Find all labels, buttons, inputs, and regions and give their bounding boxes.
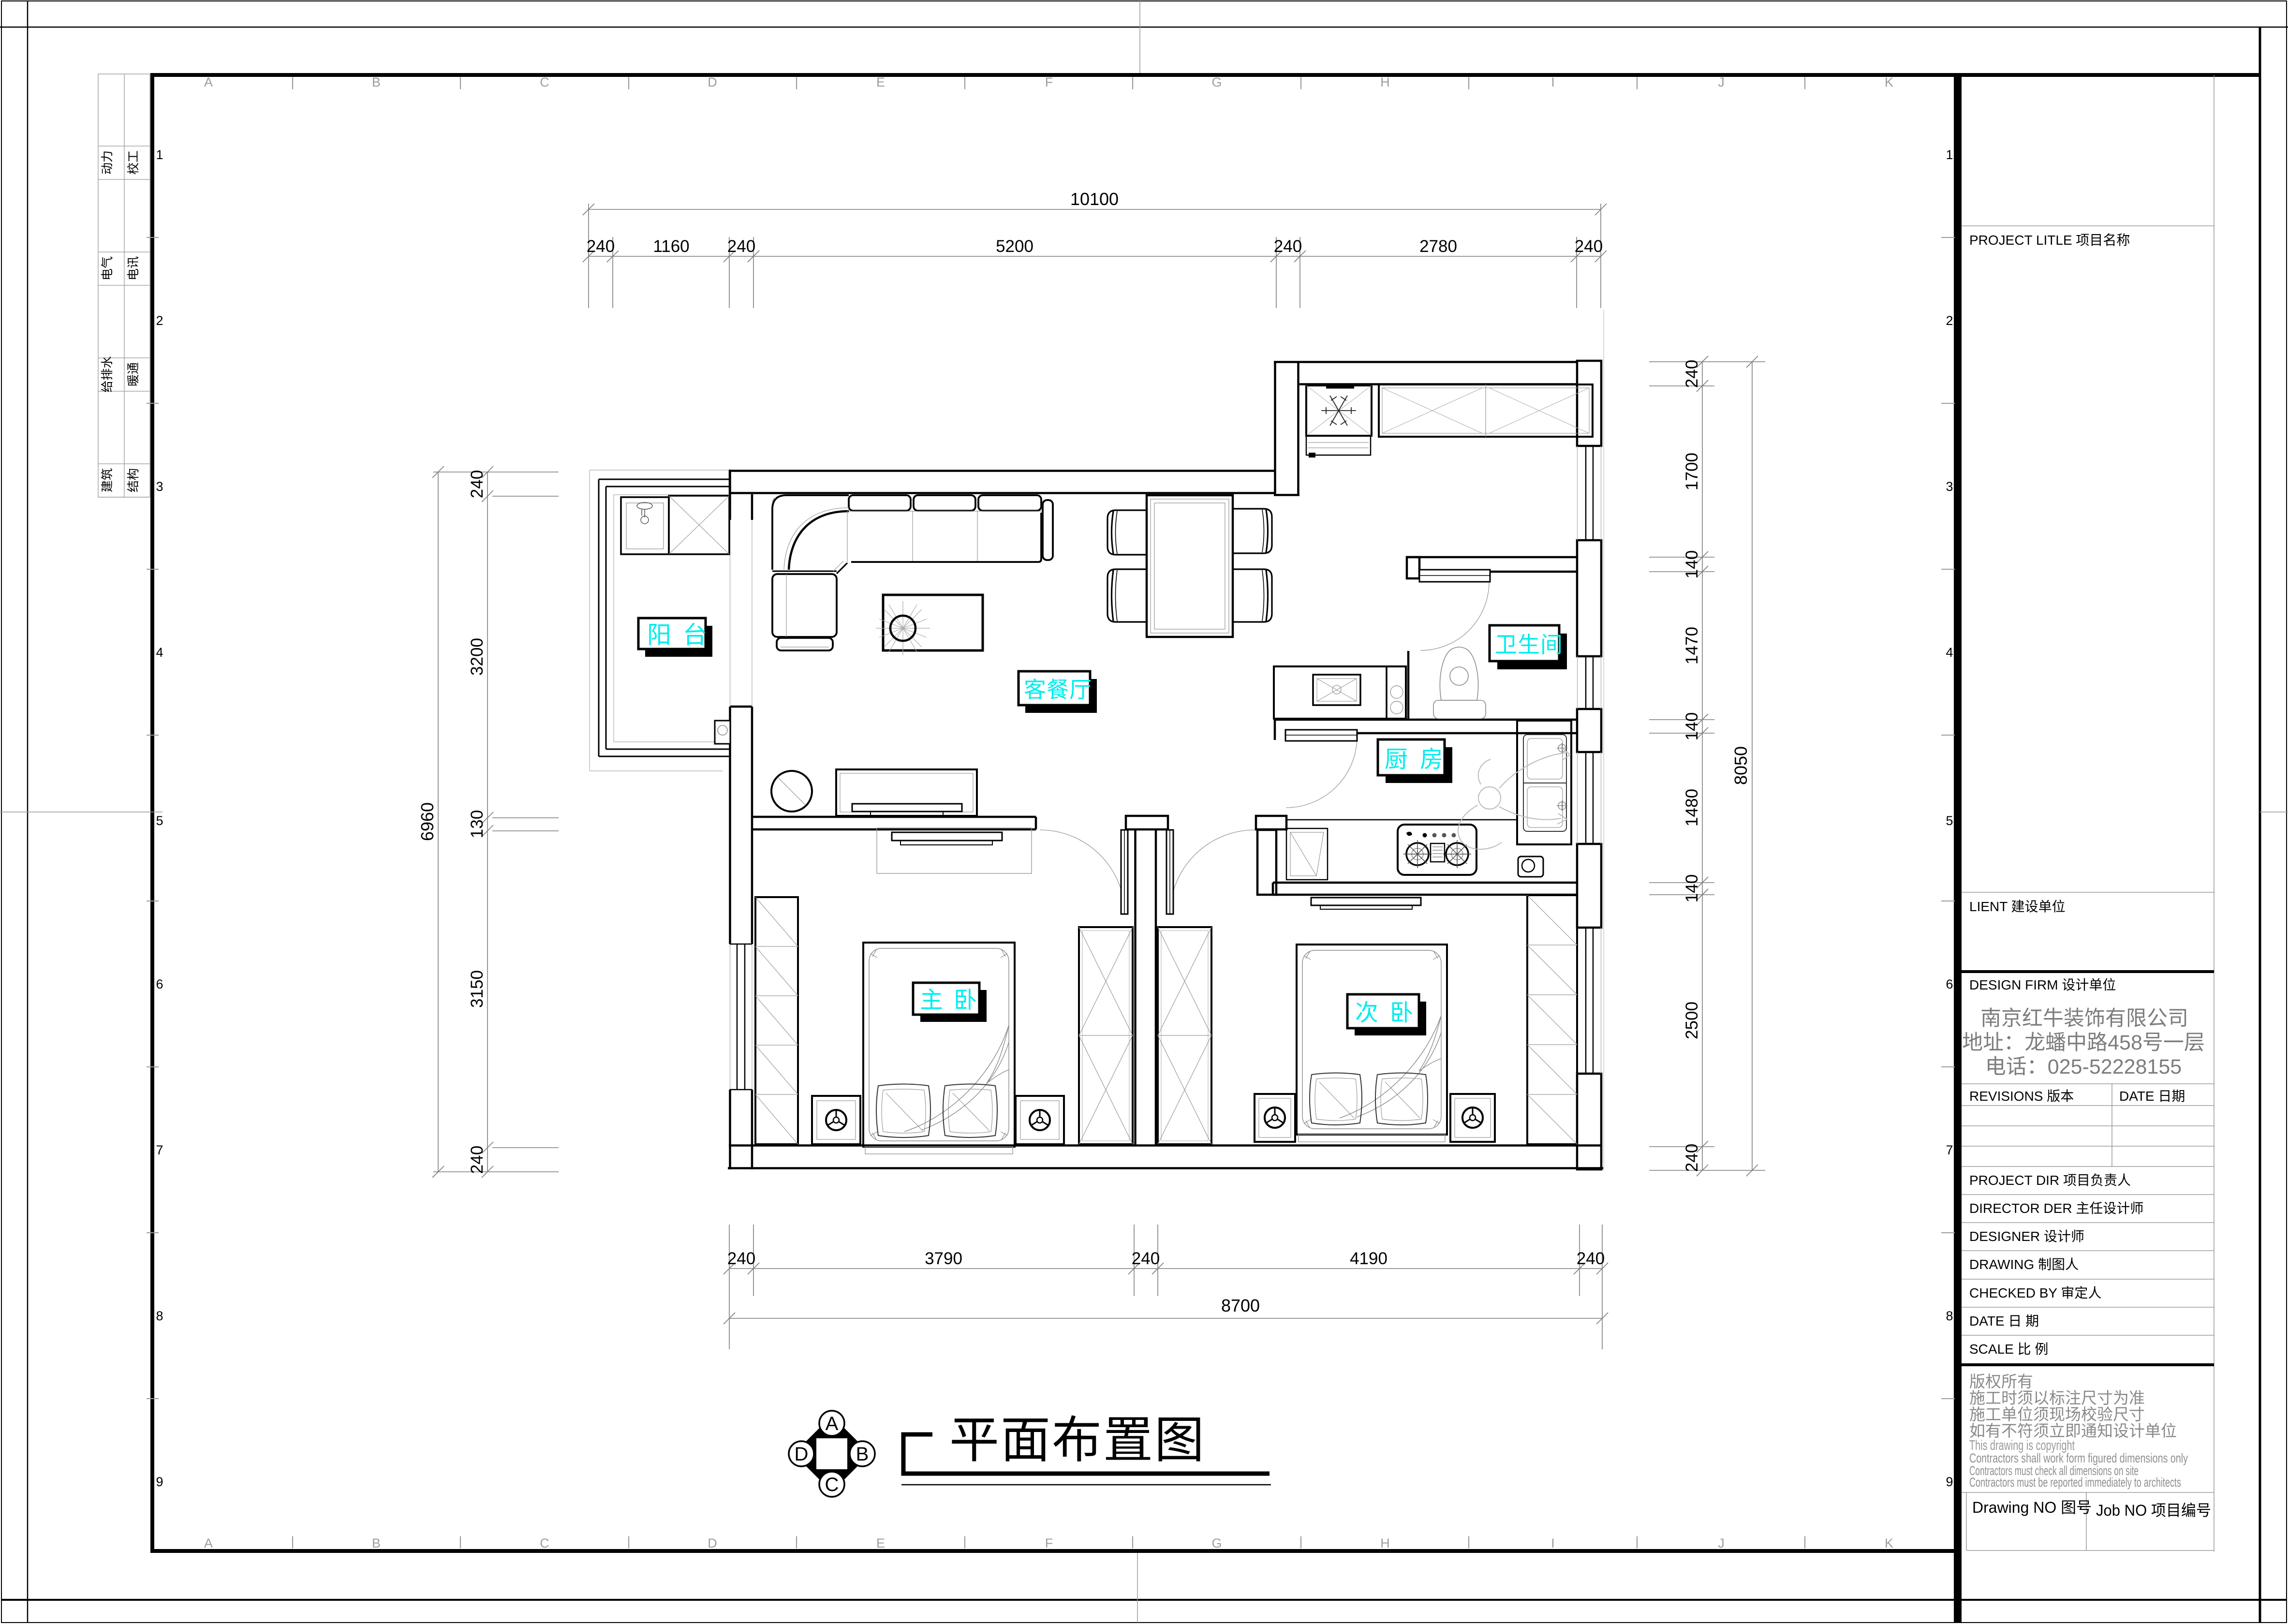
- svg-text:240: 240: [1132, 1249, 1160, 1268]
- svg-text:A: A: [826, 1413, 839, 1434]
- svg-text:2500: 2500: [1683, 1002, 1701, 1039]
- svg-text:8: 8: [156, 1309, 163, 1323]
- svg-text:电气: 电气: [101, 256, 114, 281]
- svg-text:建筑: 建筑: [101, 468, 114, 492]
- svg-text:|: |: [1635, 1534, 1639, 1549]
- svg-text:餐: 餐: [1047, 677, 1069, 702]
- svg-text:10100: 10100: [1070, 189, 1119, 209]
- svg-text:Contractors must be reported i: Contractors must be reported immediately…: [1969, 1475, 2181, 1490]
- svg-text:电话：025-52228155: 电话：025-52228155: [1985, 1055, 2182, 1078]
- svg-text:H: H: [1380, 75, 1390, 89]
- svg-text:|: |: [795, 1534, 798, 1549]
- svg-text:140: 140: [1683, 712, 1701, 740]
- svg-text:施工单位须现场校验尺寸: 施工单位须现场校验尺寸: [1969, 1405, 2145, 1423]
- svg-text:B: B: [856, 1444, 869, 1465]
- svg-text:9: 9: [156, 1475, 163, 1489]
- svg-text:电讯: 电讯: [127, 256, 140, 281]
- svg-text:E: E: [876, 75, 885, 89]
- svg-text:D: D: [708, 1536, 717, 1550]
- svg-text:1160: 1160: [653, 237, 689, 256]
- svg-text:F: F: [1045, 75, 1053, 89]
- svg-text:施工时须以标注尺寸为准: 施工时须以标注尺寸为准: [1969, 1389, 2145, 1407]
- svg-text:J: J: [1718, 1536, 1725, 1550]
- svg-text:客: 客: [1024, 677, 1046, 702]
- svg-text:厅: 厅: [1069, 677, 1092, 702]
- svg-text:Job NO 项目编号: Job NO 项目编号: [2096, 1502, 2211, 1519]
- svg-text:Drawing NO 图号: Drawing NO 图号: [1972, 1499, 2092, 1516]
- svg-text:D: D: [708, 75, 717, 89]
- svg-text:K: K: [1885, 75, 1893, 89]
- svg-text:240: 240: [1683, 360, 1701, 388]
- svg-text:|: |: [1467, 75, 1470, 89]
- svg-text:A: A: [204, 1536, 213, 1550]
- svg-text:3: 3: [1946, 479, 1953, 494]
- svg-text:|: |: [291, 75, 294, 89]
- svg-text:D: D: [795, 1444, 809, 1465]
- svg-text:|: |: [291, 1534, 294, 1549]
- svg-text:8: 8: [1946, 1309, 1953, 1323]
- svg-text:3200: 3200: [468, 638, 487, 676]
- svg-text:C: C: [540, 1536, 549, 1550]
- svg-text:A: A: [204, 75, 213, 89]
- svg-text:结构: 结构: [127, 468, 140, 492]
- svg-text:2: 2: [1946, 313, 1953, 328]
- svg-text:K: K: [1885, 1536, 1893, 1550]
- svg-text:140: 140: [1683, 550, 1701, 578]
- svg-text:动力: 动力: [101, 150, 114, 175]
- svg-text:DATE 日 期: DATE 日 期: [1969, 1314, 2039, 1329]
- svg-text:C: C: [825, 1474, 839, 1495]
- svg-text:次: 次: [1355, 1000, 1378, 1026]
- svg-text:240: 240: [1575, 237, 1603, 256]
- svg-text:J: J: [1718, 75, 1725, 89]
- svg-text:I: I: [1551, 1536, 1555, 1550]
- svg-text:|: |: [627, 1534, 630, 1549]
- svg-text:5: 5: [156, 813, 163, 828]
- svg-text:版权所有: 版权所有: [1969, 1373, 2033, 1390]
- svg-text:|: |: [963, 1534, 966, 1549]
- svg-text:阳: 阳: [647, 621, 671, 649]
- svg-text:DIRECTOR DER 主任设计师: DIRECTOR DER 主任设计师: [1969, 1201, 2143, 1216]
- svg-text:240: 240: [727, 1249, 755, 1268]
- svg-text:如有不符须立即通知设计单位: 如有不符须立即通知设计单位: [1969, 1422, 2177, 1440]
- svg-text:1: 1: [156, 148, 163, 162]
- svg-text:校工: 校工: [127, 150, 140, 175]
- svg-text:4: 4: [1946, 645, 1953, 660]
- svg-text:南京红牛装饰有限公司: 南京红牛装饰有限公司: [1980, 1007, 2188, 1030]
- svg-text:E: E: [876, 1536, 885, 1550]
- svg-text:LIENT 建设单位: LIENT 建设单位: [1969, 899, 2066, 914]
- svg-text:平面布置图: 平面布置图: [949, 1413, 1206, 1468]
- svg-text:240: 240: [727, 237, 755, 256]
- svg-text:DATE 日期: DATE 日期: [2119, 1089, 2185, 1104]
- svg-text:B: B: [372, 1536, 381, 1550]
- svg-text:2780: 2780: [1419, 237, 1457, 256]
- svg-text:|: |: [1131, 1534, 1134, 1549]
- svg-text:6: 6: [1946, 977, 1953, 991]
- svg-text:240: 240: [1683, 1144, 1701, 1172]
- svg-text:|: |: [1803, 1534, 1806, 1549]
- svg-text:SCALE 比 例: SCALE 比 例: [1969, 1342, 2048, 1357]
- svg-text:1: 1: [1946, 148, 1953, 162]
- svg-text:REVISIONS 版本: REVISIONS 版本: [1969, 1089, 2074, 1104]
- svg-text:2: 2: [156, 313, 163, 328]
- svg-text:G: G: [1211, 75, 1222, 89]
- svg-text:1470: 1470: [1683, 627, 1701, 664]
- svg-text:|: |: [627, 75, 630, 89]
- svg-text:给排水: 给排水: [101, 356, 114, 392]
- svg-text:|: |: [963, 75, 966, 89]
- svg-text:|: |: [1467, 1534, 1470, 1549]
- svg-text:DESIGNER 设计师: DESIGNER 设计师: [1969, 1229, 2084, 1244]
- svg-text:4190: 4190: [1350, 1249, 1388, 1268]
- svg-text:PROJECT LITLE 项目名称: PROJECT LITLE 项目名称: [1969, 233, 2130, 248]
- svg-text:8700: 8700: [1221, 1296, 1260, 1315]
- svg-text:4: 4: [156, 645, 163, 660]
- svg-text:生: 生: [1518, 632, 1540, 657]
- svg-text:|: |: [1299, 1534, 1302, 1549]
- svg-text:卧: 卧: [954, 988, 977, 1013]
- svg-text:B: B: [372, 75, 381, 89]
- svg-text:5200: 5200: [996, 237, 1033, 256]
- svg-text:I: I: [1551, 75, 1555, 89]
- svg-text:CHECKED BY 审定人: CHECKED BY 审定人: [1969, 1285, 2101, 1300]
- svg-text:台: 台: [683, 621, 707, 649]
- svg-text:|: |: [1299, 75, 1302, 89]
- svg-text:|: |: [1635, 75, 1639, 89]
- svg-text:|: |: [1131, 75, 1134, 89]
- svg-text:|: |: [458, 75, 462, 89]
- svg-text:3150: 3150: [468, 970, 487, 1008]
- svg-text:240: 240: [587, 237, 615, 256]
- svg-text:5: 5: [1946, 813, 1953, 828]
- svg-text:8050: 8050: [1731, 746, 1751, 785]
- svg-text:1480: 1480: [1683, 789, 1701, 827]
- svg-text:房: 房: [1420, 747, 1443, 772]
- svg-text:PROJECT DIR 项目负责人: PROJECT DIR 项目负责人: [1969, 1173, 2131, 1188]
- svg-text:|: |: [795, 75, 798, 89]
- svg-text:3: 3: [156, 479, 163, 494]
- svg-text:DRAWING 制图人: DRAWING 制图人: [1969, 1257, 2079, 1272]
- svg-text:卧: 卧: [1390, 1000, 1413, 1026]
- svg-text:C: C: [540, 75, 549, 89]
- svg-text:主: 主: [920, 988, 943, 1013]
- svg-text:1700: 1700: [1683, 453, 1701, 490]
- svg-text:卫: 卫: [1495, 632, 1517, 657]
- svg-text:7: 7: [1946, 1143, 1953, 1157]
- svg-text:DESIGN FIRM 设计单位: DESIGN FIRM 设计单位: [1969, 977, 2116, 992]
- svg-text:F: F: [1045, 1536, 1053, 1550]
- svg-text:暖通: 暖通: [127, 362, 140, 386]
- svg-text:9: 9: [1946, 1475, 1953, 1489]
- svg-text:|: |: [1803, 75, 1806, 89]
- svg-text:厨: 厨: [1385, 747, 1408, 772]
- svg-text:130: 130: [468, 810, 487, 838]
- svg-text:240: 240: [468, 470, 487, 498]
- svg-text:3790: 3790: [925, 1249, 962, 1268]
- svg-text:240: 240: [1577, 1249, 1605, 1268]
- svg-text:G: G: [1211, 1536, 1222, 1550]
- svg-text:7: 7: [156, 1143, 163, 1157]
- svg-text:6: 6: [156, 977, 163, 991]
- svg-text:H: H: [1380, 1536, 1390, 1550]
- svg-text:地址：龙蟠中路458号一层: 地址：龙蟠中路458号一层: [1962, 1031, 2205, 1054]
- svg-text:240: 240: [468, 1146, 487, 1174]
- svg-text:6960: 6960: [417, 802, 437, 841]
- svg-text:140: 140: [1683, 874, 1701, 902]
- svg-text:240: 240: [1274, 237, 1302, 256]
- svg-text:间: 间: [1540, 632, 1563, 657]
- svg-text:|: |: [458, 1534, 462, 1549]
